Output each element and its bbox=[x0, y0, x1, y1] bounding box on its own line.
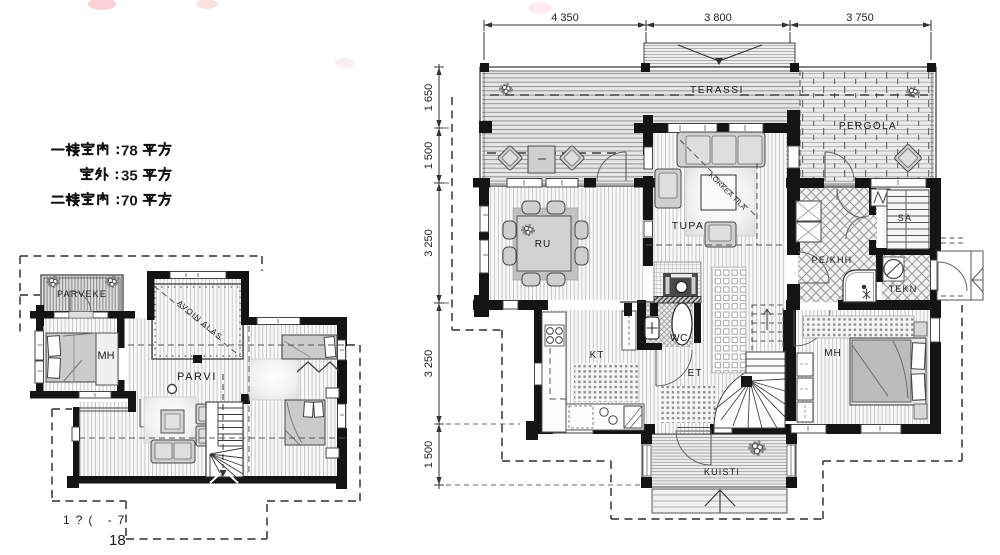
svg-text:ET: ET bbox=[688, 368, 703, 379]
svg-text:PE/KHH: PE/KHH bbox=[812, 255, 853, 265]
svg-text:KUISTI: KUISTI bbox=[704, 467, 740, 477]
svg-text:MH: MH bbox=[97, 350, 114, 362]
svg-text:18: 18 bbox=[109, 532, 126, 549]
svg-text:MH: MH bbox=[824, 348, 842, 359]
svg-text:3 750: 3 750 bbox=[846, 12, 874, 24]
svg-text:4 350: 4 350 bbox=[551, 12, 579, 24]
svg-text:PERGOLA: PERGOLA bbox=[839, 121, 897, 132]
svg-text:78: 78 bbox=[121, 143, 138, 160]
svg-text:3 250: 3 250 bbox=[423, 229, 435, 257]
svg-text:SA: SA bbox=[898, 213, 912, 223]
svg-text:1 650: 1 650 bbox=[423, 84, 435, 112]
svg-text:70: 70 bbox=[121, 193, 138, 210]
svg-text:TEKN: TEKN bbox=[889, 284, 918, 294]
svg-text:RU: RU bbox=[535, 239, 551, 250]
svg-text:3 800: 3 800 bbox=[704, 12, 732, 24]
svg-text:KT: KT bbox=[590, 350, 605, 361]
svg-text:35: 35 bbox=[121, 168, 138, 185]
svg-text:1?( -7: 1?( -7 bbox=[63, 513, 130, 527]
svg-text:WC: WC bbox=[670, 333, 688, 344]
svg-text:1 500: 1 500 bbox=[423, 441, 435, 469]
svg-text:PARVEKE: PARVEKE bbox=[57, 289, 107, 299]
svg-text:PARVI: PARVI bbox=[177, 371, 217, 383]
svg-text:TUPA: TUPA bbox=[672, 220, 704, 232]
svg-text:3 250: 3 250 bbox=[423, 350, 435, 378]
svg-text:1 500: 1 500 bbox=[423, 142, 435, 170]
svg-text:TERASSI: TERASSI bbox=[690, 85, 744, 96]
